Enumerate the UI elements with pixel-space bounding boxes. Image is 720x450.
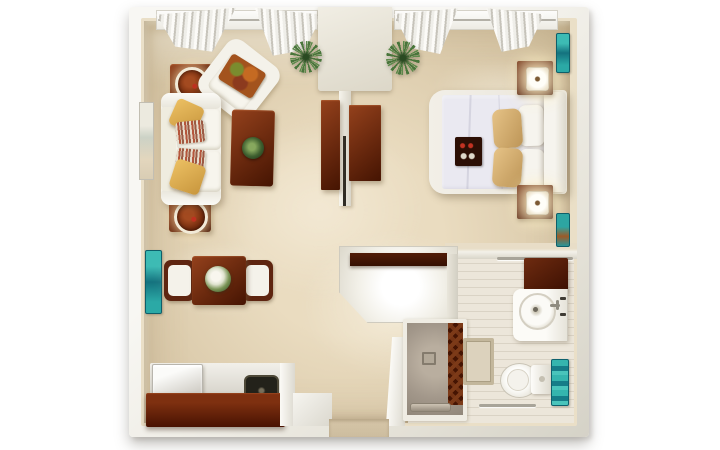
vanity-sink-basin bbox=[519, 293, 556, 330]
bath-mat bbox=[463, 338, 494, 385]
entry-door-threshold bbox=[329, 419, 389, 437]
sofa-pillow-striped bbox=[175, 120, 206, 145]
towel-bar bbox=[479, 404, 536, 407]
wall-art-living bbox=[139, 102, 154, 180]
nightstand-lamp bbox=[526, 67, 549, 91]
vanity-handle bbox=[560, 313, 566, 316]
vanity-handle bbox=[560, 297, 566, 300]
coffee-table-plant bbox=[242, 137, 264, 159]
closet-wardrobe-bedroom-side bbox=[349, 105, 381, 181]
entry-console-shelf bbox=[350, 253, 447, 266]
bathroom-storage-cabinet bbox=[524, 258, 568, 292]
bed-pillow-tan bbox=[492, 108, 524, 149]
entry-step-wall bbox=[293, 393, 332, 426]
dining-chair-cushion bbox=[168, 265, 191, 296]
wall-art-teal-bedroom bbox=[556, 33, 570, 73]
sink-drain bbox=[533, 307, 538, 312]
dining-chair-cushion bbox=[246, 265, 269, 296]
closet-door-track bbox=[343, 136, 346, 206]
bed-pillow-tan bbox=[492, 147, 524, 188]
entry-stub-wall bbox=[447, 254, 458, 323]
bed-headboard bbox=[544, 92, 566, 192]
potted-plant bbox=[386, 41, 420, 75]
bed-breakfast-tray bbox=[455, 137, 482, 166]
faucet-spout bbox=[556, 300, 559, 310]
dining-table-centerpiece bbox=[205, 266, 231, 292]
nightstand-lamp bbox=[526, 191, 549, 215]
toilet-seat bbox=[507, 369, 529, 391]
closet-wardrobe-living-side bbox=[321, 100, 340, 190]
dining-chair bbox=[164, 260, 195, 301]
center-wall-block bbox=[318, 7, 392, 91]
teal-towels bbox=[551, 359, 569, 406]
toilet-flush-button bbox=[539, 376, 545, 382]
potted-plant bbox=[290, 41, 322, 73]
side-table-lamp-tray bbox=[174, 200, 208, 234]
floorplan-canvas bbox=[0, 0, 720, 450]
shower-drain bbox=[410, 403, 451, 412]
shower-control bbox=[422, 352, 436, 365]
wall-art-teal-bedroom bbox=[556, 213, 570, 247]
shower-mosaic-tile-strip bbox=[448, 323, 463, 405]
dining-chair bbox=[242, 260, 273, 301]
kitchenette-counter-front bbox=[146, 393, 285, 427]
